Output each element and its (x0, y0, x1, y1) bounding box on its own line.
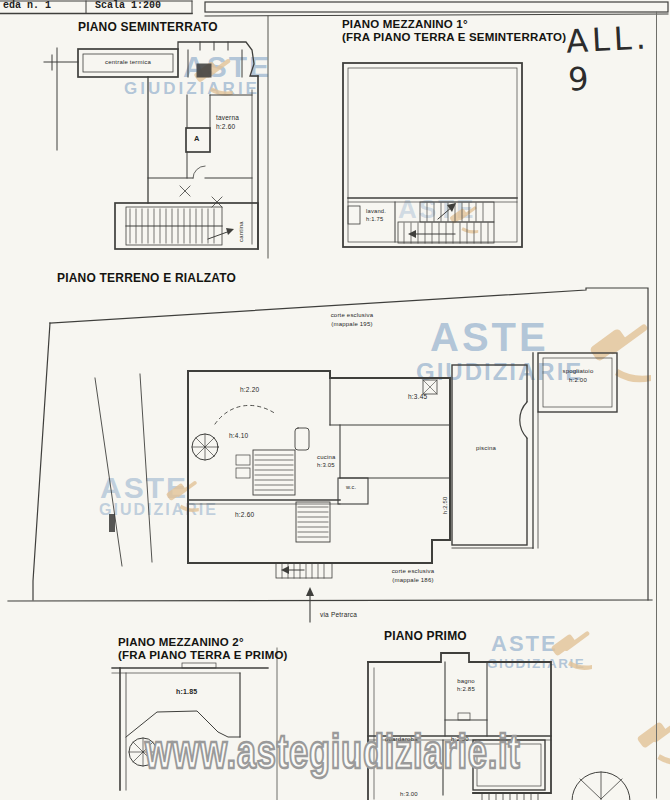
title-piano-mezzanino1: PIANO MEZZANINO 1° (FRA PIANO TERRA E SE… (342, 18, 566, 44)
room-label-wc: w.c. (346, 484, 356, 490)
room-label-h260: h:2.60 (235, 511, 254, 518)
title-piano-terreno: PIANO TERRENO E RIALZATO (57, 271, 236, 285)
watermark-url-band: www.astegiudiziarie.it (145, 724, 521, 779)
room-label-bagno-height: h:2.85 (447, 686, 485, 692)
room-label-spogliatoio-height: h:2.00 (549, 377, 607, 383)
room-label-lavanderia: lavand. (366, 208, 386, 214)
room-label-h185: h:1.85 (176, 688, 197, 695)
court-label-south: corte esclusiva (378, 568, 448, 574)
room-label-piscina: piscina (476, 445, 496, 451)
room-label-h300: h:3.00 (400, 791, 418, 797)
title-block-lines (0, 1, 668, 800)
room-label-centrale-termica: centrale termica (96, 59, 160, 65)
room-label-h410: h:4.10 (229, 432, 248, 439)
room-label-piscina-height: h:2.50 (442, 486, 448, 514)
court-label-north-parcel: (mappale 195) (317, 321, 387, 327)
room-label-lavanderia-height: h:1.75 (366, 216, 383, 222)
room-label-a: A (194, 134, 200, 143)
attachment-handwritten-note: ALL. 9 (565, 17, 670, 98)
room-label-h345: h:3.45 (408, 393, 427, 400)
title-piano-mezzanino2: PIANO MEZZANINO 2° (FRA PIANO TERRA E PR… (118, 636, 288, 662)
title-piano-primo: PIANO PRIMO (384, 629, 467, 643)
scanned-floorplan-page: ASTE GIUDIZIARIE ASTE ASTE GIUDIZIARIE A… (0, 0, 670, 800)
room-label-bagno: bagno (447, 678, 485, 684)
room-label-taverna-height: h:2.60 (216, 123, 235, 130)
title-piano-mezzanino2-line2: (FRA PIANO TERRA E PRIMO) (118, 649, 288, 662)
room-label-h220: h:2.20 (240, 386, 259, 393)
room-label-spogliatoio: spogliatoio (549, 368, 607, 374)
scale-label: Scala 1:200 (95, 0, 161, 11)
court-label-north: corte esclusiva (317, 312, 387, 318)
title-piano-seminterrato: PIANO SEMINTERRATO (78, 20, 218, 34)
room-label-cucina: cucina (317, 454, 336, 460)
floor-plans-linework (0, 0, 670, 800)
sheet-number-label: eda n. 1 (3, 0, 51, 11)
room-label-cucina-height: h:3.05 (317, 462, 335, 468)
plan-seminterrato (44, 42, 258, 249)
room-label-taverna: taverna (216, 114, 239, 121)
title-piano-mezzanino1-line2: (FRA PIANO TERRA E SEMINTERRATO) (342, 31, 566, 44)
title-piano-mezzanino2-line1: PIANO MEZZANINO 2° (118, 636, 288, 649)
court-label-south-parcel: (mappale 186) (378, 577, 448, 583)
title-piano-mezzanino1-line1: PIANO MEZZANINO 1° (342, 18, 566, 31)
street-label-via-petrarca: via Petrarca (320, 611, 357, 618)
room-label-cantina: cantina (238, 206, 244, 242)
